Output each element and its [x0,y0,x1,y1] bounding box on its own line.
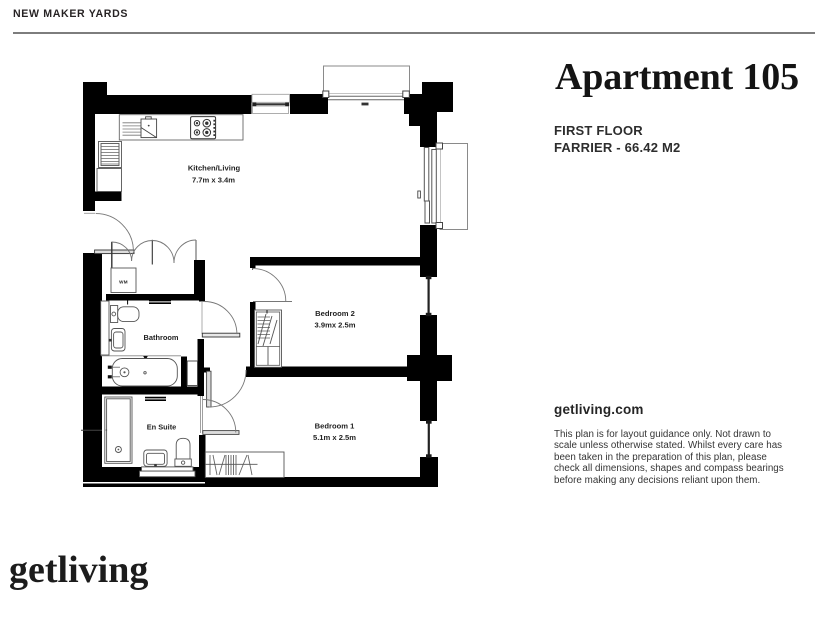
svg-text:3.9mx 2.5m: 3.9mx 2.5m [315,320,356,329]
svg-text:5.1m x 2.5m: 5.1m x 2.5m [313,433,356,442]
svg-text:En Suite: En Suite [147,423,177,432]
svg-text:7.7m x 3.4m: 7.7m x 3.4m [192,175,235,184]
svg-text:WM: WM [119,279,128,284]
svg-text:Bathroom: Bathroom [144,333,179,342]
svg-text:Bedroom 1: Bedroom 1 [315,422,355,431]
svg-text:Bedroom 2: Bedroom 2 [315,309,355,318]
svg-text:Kitchen/Living: Kitchen/Living [188,163,241,172]
